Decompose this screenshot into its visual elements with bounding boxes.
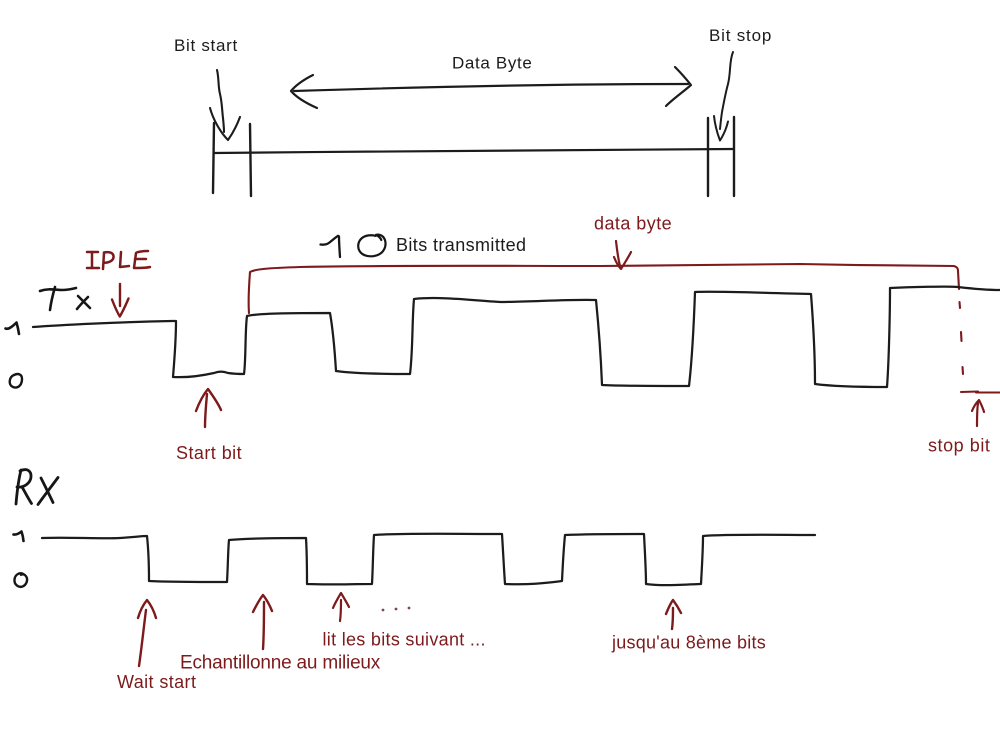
svg-text:Bit stop: Bit stop	[709, 26, 772, 45]
svg-text:jusqu'au 8ème bits: jusqu'au 8ème bits	[611, 633, 766, 653]
svg-text:data byte: data byte	[594, 214, 672, 234]
svg-text:Wait start: Wait start	[117, 672, 196, 692]
svg-text:lit les bits suivant ...: lit les bits suivant ...	[323, 630, 486, 650]
svg-text:Echantillonne au milieux: Echantillonne au milieux	[180, 653, 381, 674]
svg-text:Data Byte: Data Byte	[452, 54, 533, 73]
svg-text:Start bit: Start bit	[176, 443, 242, 463]
svg-text:Bits transmitted: Bits transmitted	[396, 235, 526, 255]
svg-text:Bit start: Bit start	[174, 36, 238, 55]
svg-text:stop bit: stop bit	[928, 436, 990, 456]
